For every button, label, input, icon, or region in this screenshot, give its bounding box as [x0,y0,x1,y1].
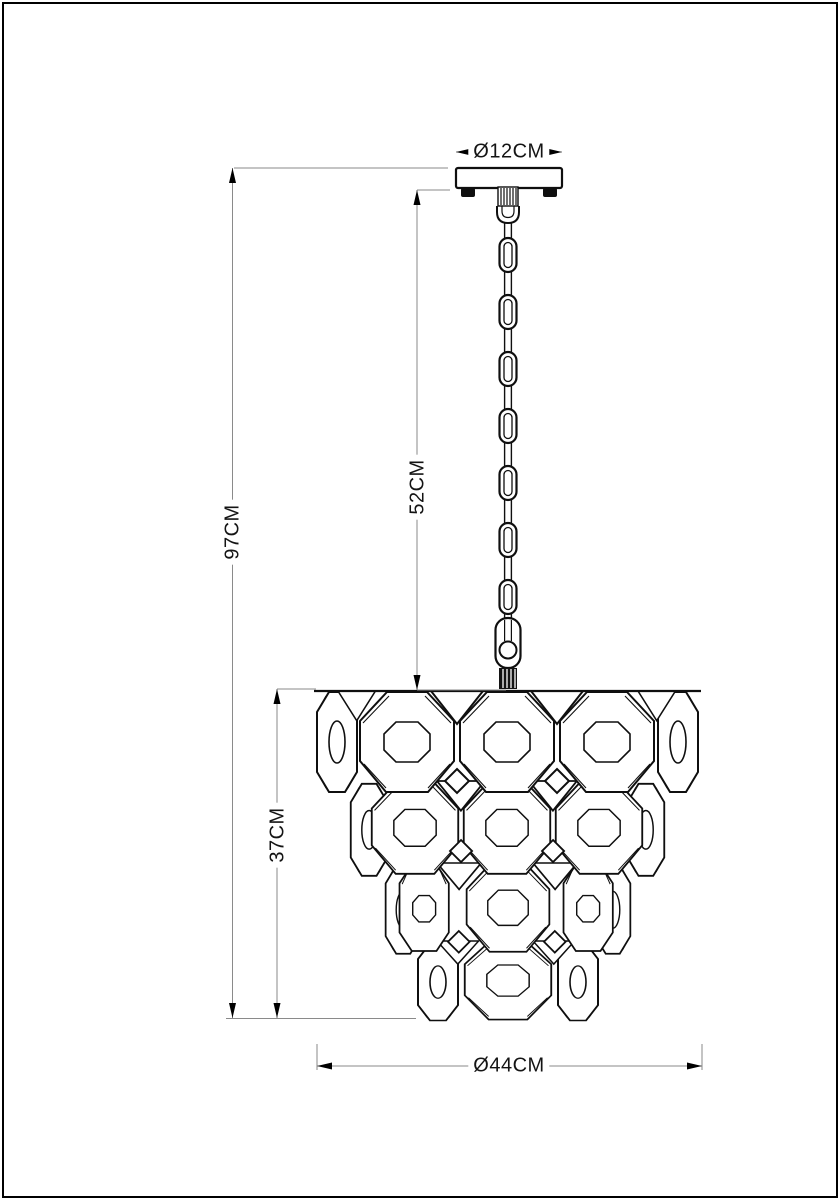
canopy-threaded-stem [498,187,518,206]
shade-tier-3 [386,863,631,954]
chain-shackle [496,618,521,668]
tiered-shade [314,691,701,1021]
canopy-hook-loop [497,206,519,223]
crystal-plate [556,782,642,874]
chain-link [500,295,517,329]
crystal-plate-turned [400,865,449,951]
crystal-plate [464,782,550,874]
dimension-label-chain-drop: 52CM [407,454,430,519]
chain-link [500,409,517,443]
technical-drawing-canvas: Ø12CM 97CM 52CM 37CM Ø44CM [0,0,840,1200]
crystal-plate [560,692,654,792]
canopy-hook-loop-inner [502,206,514,218]
dimension-label-shade-height: 37CM [267,802,290,867]
chandelier-dimension-diagram [0,0,840,1200]
canopy-screw-right [543,188,557,197]
crystal-plate [372,782,458,874]
dimension-label-shade-diameter: Ø44CM [468,1055,549,1078]
crystal-plate [460,692,554,792]
crystal-plate-turned [564,865,613,951]
dimension-label-overall-height: 97CM [222,499,245,564]
chain-link [500,352,517,386]
shade-tier-4 [418,941,598,1021]
canopy-screw-left [461,188,475,197]
chain-link [500,580,517,614]
crystal-plate [465,942,551,1020]
dimension-chain-drop [414,190,421,690]
chain-link [500,523,517,557]
crystal-plate [360,692,454,792]
shade-connector-nipple [499,668,517,689]
shade-tier-1 [314,691,701,793]
dimension-overall-height [229,168,236,1018]
shade-tier-2 [351,781,665,876]
chain-link [500,466,517,500]
canopy-plate [456,168,562,188]
dimension-label-canopy-diameter: Ø12CM [468,141,549,164]
hanging-chain [496,222,521,689]
ceiling-canopy [456,168,562,223]
chain-link [500,238,517,272]
crystal-plate-edge [558,944,598,1021]
page-border [3,3,837,1197]
crystal-plate [467,864,550,952]
